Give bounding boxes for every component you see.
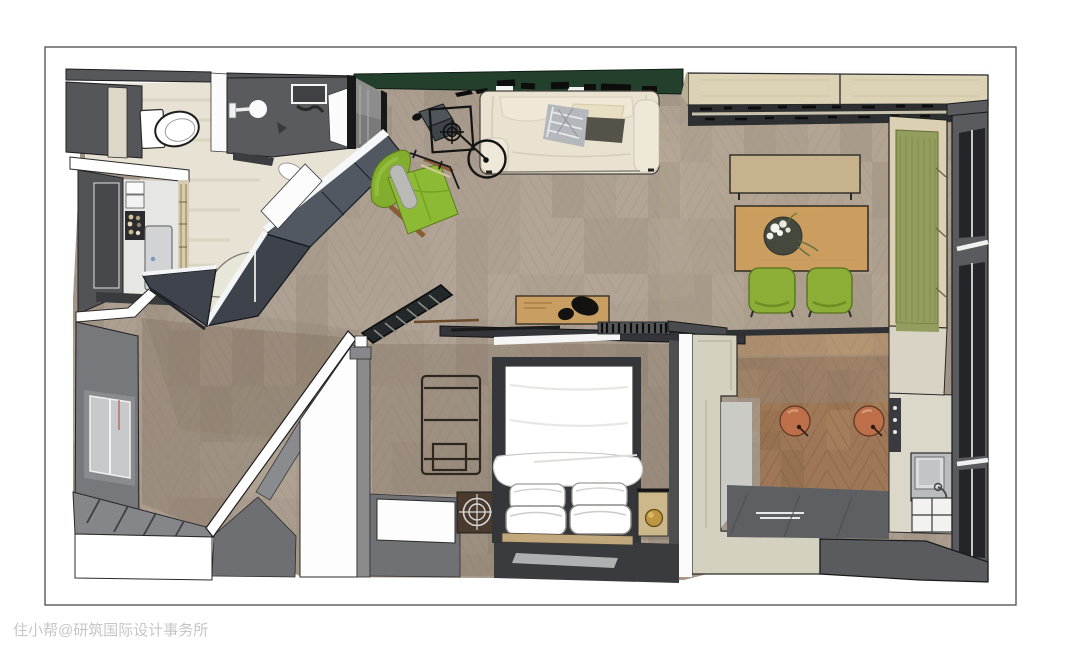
svg-text:住小帮@研筑国际设计事务所: 住小帮@研筑国际设计事务所 [13, 622, 208, 639]
